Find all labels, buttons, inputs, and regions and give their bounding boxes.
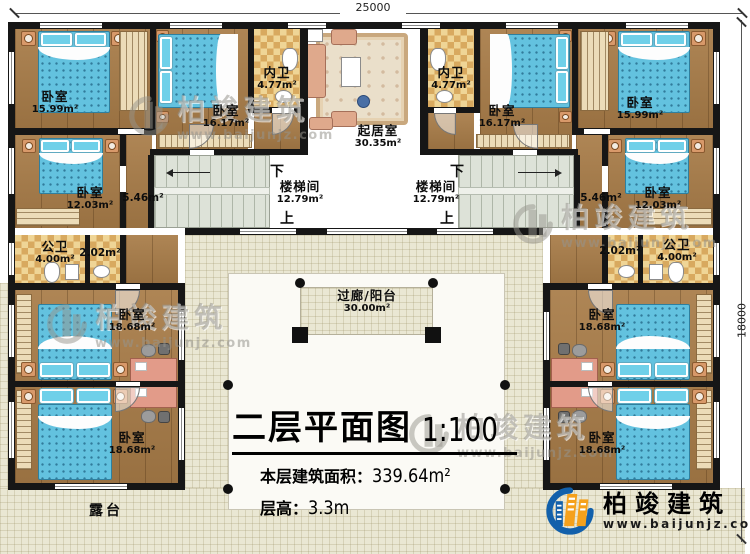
coffee-table [341, 57, 361, 87]
room-area: 4.77m² [246, 80, 308, 91]
window [327, 229, 407, 234]
sheet-title: 二层平面图 [232, 400, 412, 449]
pillow [618, 363, 651, 377]
room-area: 4.00m² [648, 252, 706, 263]
column-square [425, 327, 441, 343]
room-name: 楼梯间 [398, 180, 474, 194]
room-label-ensuite-bath-right: 内卫 4.77m² [420, 66, 482, 91]
living-room-rug [316, 33, 408, 125]
desk-chair [572, 410, 587, 423]
floor-height-value: 3.3m [308, 497, 349, 519]
room-label-wing-left-lower: 卧室 18.68m² [98, 431, 166, 456]
floor-height-line: 层高：3.3m [260, 495, 517, 519]
window [55, 484, 127, 489]
room-name: 卧室 [624, 186, 692, 200]
room-label-bedroom-mid-top-left: 卧室 16.17m² [182, 104, 270, 129]
nightstand [105, 139, 119, 153]
pillow [618, 389, 651, 403]
window [9, 243, 14, 275]
door-opening [664, 229, 684, 234]
nightstand [21, 31, 36, 46]
room-name: 公卫 [648, 238, 706, 252]
pillow [627, 140, 655, 152]
window [9, 148, 14, 194]
wall-interior [420, 149, 578, 155]
computer [558, 343, 570, 355]
wall-interior [602, 235, 608, 283]
wardrobe [119, 31, 148, 111]
column-square [292, 327, 308, 343]
room-area: 30.35m² [330, 138, 426, 149]
pillow [40, 389, 73, 403]
stair-up-label: 上 [440, 208, 454, 228]
pillow [41, 140, 69, 152]
sheet-title-row: 二层平面图 1:100 [232, 400, 517, 455]
room-area: 12.79m² [262, 194, 338, 205]
wall-wing-left-top [8, 283, 185, 290]
sink [436, 90, 453, 103]
wall-interior [638, 235, 643, 283]
door-opening [190, 150, 214, 155]
room-name: 卧室 [568, 308, 636, 322]
stairwell-right-landing [458, 187, 574, 195]
floor-area-label: 本层建筑面积： [260, 467, 372, 486]
room-label-bedroom-mid-top-right: 卧室 16.17m² [458, 104, 546, 129]
room-area: 18.68m² [98, 445, 166, 456]
room-area: 15.99m² [15, 104, 95, 115]
pillow [77, 363, 110, 377]
company-url: www.baijunjz.com [603, 517, 750, 531]
computer [158, 411, 170, 423]
desk-paper [135, 362, 147, 371]
column-dot [428, 278, 438, 288]
nightstand [692, 389, 707, 404]
bath-hall-left-floor [126, 235, 178, 283]
window [714, 402, 719, 458]
room-area: 18.68m² [568, 445, 636, 456]
room-area: 16.17m² [458, 118, 546, 129]
computer [158, 343, 170, 355]
dimension-line-right [741, 20, 742, 542]
sink [649, 264, 663, 280]
room-label-stairwell-left: 楼梯间 12.79m² [262, 180, 338, 205]
window [714, 148, 719, 194]
pillow [655, 389, 688, 403]
company-logo: 柏竣建筑 www.baijunjz.com [545, 486, 750, 536]
door-opening [588, 284, 612, 289]
nightstand [156, 111, 169, 123]
desk-chair [572, 344, 587, 357]
room-label-bedroom-top-left: 卧室 15.99m² [15, 90, 95, 115]
room-name: 卧室 [458, 104, 546, 118]
door-opening [602, 166, 608, 192]
room-area: 18.68m² [568, 322, 636, 333]
room-label-hallway-right: 5.46m² [570, 193, 632, 205]
dimension-top-label: 25000 [340, 1, 406, 14]
company-name: 柏竣建筑 [603, 491, 750, 517]
room-label-wing-right-lower: 卧室 18.68m² [568, 431, 636, 456]
pillow [556, 37, 568, 69]
door-opening [44, 229, 64, 234]
room-name: 楼梯间 [262, 180, 338, 194]
room-name: 内卫 [246, 66, 308, 80]
room-name: 内卫 [420, 66, 482, 80]
nightstand [21, 389, 36, 404]
washbasin [618, 265, 635, 278]
column-dot [500, 380, 510, 390]
pillow [621, 33, 652, 46]
pillow [655, 33, 686, 46]
door-opening [116, 284, 140, 289]
pillow [556, 71, 568, 103]
room-label-terrace: 露台 [78, 504, 134, 520]
room-area: 4.77m² [420, 80, 482, 91]
room-name: 露台 [78, 504, 134, 520]
wall-wing-right-top [543, 283, 720, 290]
room-name: 起居室 [330, 124, 426, 138]
bed-sheet-fold [490, 34, 512, 108]
window [9, 52, 14, 104]
room-label-wing-left-upper: 卧室 18.68m² [98, 308, 166, 333]
nightstand [600, 362, 615, 377]
floor-height-label: 层高： [260, 499, 308, 518]
column-dot [295, 278, 305, 288]
sink [65, 264, 79, 280]
wall-perimeter-top [8, 22, 720, 29]
title-block: 二层平面图 1:100 本层建筑面积：339.64m² 层高：3.3m [232, 400, 517, 519]
nightstand [691, 31, 706, 46]
computer [558, 411, 570, 423]
room-label-washroom-right: 2.02m² [596, 246, 644, 258]
company-logo-text-block: 柏竣建筑 www.baijunjz.com [603, 491, 750, 531]
desk-chair [141, 344, 156, 357]
dimension-right-label: 18000 [736, 291, 749, 351]
washbasin [93, 265, 110, 278]
room-label-washroom-left: 2.02m² [76, 248, 124, 260]
nightstand [22, 139, 36, 153]
pillow [72, 140, 100, 152]
stair-down-label: 下 [270, 161, 284, 181]
pillow [40, 363, 73, 377]
stair-direction-arrow [168, 172, 210, 173]
plant-vase [357, 95, 370, 108]
room-area: 12.79m² [398, 194, 474, 205]
bed-sheet-fold [216, 34, 238, 108]
nightstand [691, 139, 705, 153]
room-label-stairwell-right: 楼梯间 12.79m² [398, 180, 474, 205]
stair-direction-arrow [518, 172, 560, 173]
room-area: 18.68m² [98, 322, 166, 333]
window [40, 23, 102, 28]
pillow [41, 33, 72, 46]
room-name: 卧室 [15, 90, 95, 104]
room-name: 卧室 [182, 104, 270, 118]
room-area: 12.03m² [624, 200, 692, 211]
window [170, 23, 222, 28]
wall-interior [150, 149, 308, 155]
window [714, 243, 719, 275]
window [9, 402, 14, 458]
wall-wing-left-divider [15, 381, 178, 387]
pillow [658, 140, 686, 152]
window [179, 408, 184, 460]
room-area: 2.02m² [596, 246, 644, 258]
floor-plan-canvas: 25000 18000 柏竣建筑www.baijunjz.com 柏竣建筑www… [0, 0, 750, 554]
room-area: 2.02m² [76, 248, 124, 260]
room-area: 5.46m² [570, 193, 632, 205]
pillow [160, 71, 172, 103]
floor-area-value: 339.64m² [372, 465, 451, 487]
armchair [331, 29, 357, 45]
company-logo-icon [545, 486, 595, 536]
stair-down-label: 下 [450, 161, 464, 181]
sink [275, 90, 292, 103]
window [506, 23, 558, 28]
window [626, 23, 688, 28]
door-opening [513, 150, 537, 155]
room-name: 卧室 [98, 308, 166, 322]
room-label-ensuite-bath-left: 内卫 4.77m² [246, 66, 308, 91]
window [402, 23, 440, 28]
sheet-scale: 1:100 [422, 410, 498, 449]
toilet [668, 262, 684, 283]
window [179, 312, 184, 360]
pillow [160, 37, 172, 69]
window [240, 229, 296, 234]
wall-interior [572, 29, 578, 135]
nightstand [692, 362, 707, 377]
nightstand [113, 362, 128, 377]
room-name: 卧室 [568, 431, 636, 445]
window [437, 229, 493, 234]
side-table [306, 29, 323, 42]
room-label-public-bath-right: 公卫 4.00m² [648, 238, 706, 263]
room-area: 15.99m² [600, 110, 680, 121]
stair-up-label: 上 [280, 208, 294, 228]
window [544, 312, 549, 360]
bath-hall-right-floor [550, 235, 602, 283]
room-name: 卧室 [600, 96, 680, 110]
door-opening [118, 129, 144, 134]
window [544, 408, 549, 460]
door-opening [584, 129, 610, 134]
room-label-wing-right-upper: 卧室 18.68m² [568, 308, 636, 333]
door-opening [588, 382, 612, 386]
nightstand [608, 139, 622, 153]
sofa-three-seat [306, 44, 326, 98]
room-area: 30.00m² [328, 303, 406, 314]
floor-area-line: 本层建筑面积：339.64m² [260, 463, 517, 487]
door-opening [116, 382, 140, 386]
pillow [655, 363, 688, 377]
desk-paper [581, 362, 593, 371]
desk-chair [141, 410, 156, 423]
wall-interior [150, 29, 156, 135]
wall-wing-right-divider [550, 381, 713, 387]
room-label-living-room: 起居室 30.35m² [330, 124, 426, 149]
window [288, 23, 326, 28]
pillow [75, 33, 106, 46]
room-name: 过廊/阳台 [328, 289, 406, 303]
nightstand [21, 362, 36, 377]
room-label-corridor-balcony: 过廊/阳台 30.00m² [328, 289, 406, 314]
room-area: 16.17m² [182, 118, 270, 129]
room-label-bedroom-top-right: 卧室 15.99m² [600, 96, 680, 121]
window [714, 52, 719, 104]
room-name: 卧室 [98, 431, 166, 445]
wall-interior [574, 155, 580, 228]
room-label-bedroom-right: 卧室 12.03m² [624, 186, 692, 211]
nightstand [559, 111, 572, 123]
column-dot [223, 380, 233, 390]
room-area: 5.46m² [112, 193, 174, 205]
window [9, 305, 14, 357]
pillow [77, 389, 110, 403]
window [714, 305, 719, 357]
room-label-hallway-left: 5.46m² [112, 193, 174, 205]
